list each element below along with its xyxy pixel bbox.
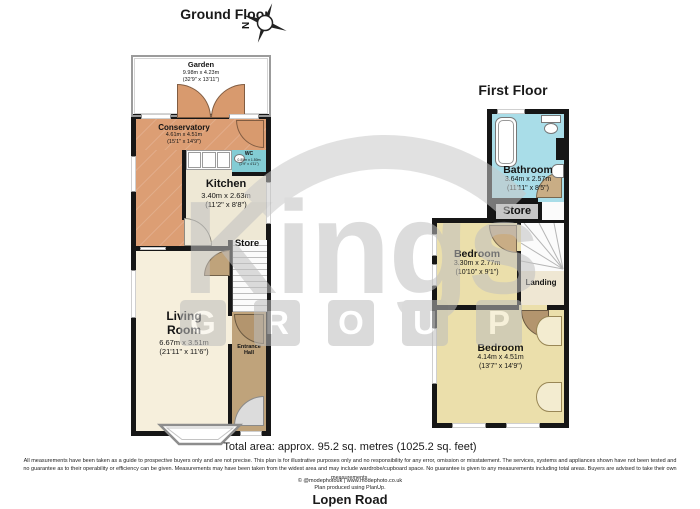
conservatory-window — [131, 156, 136, 192]
kitchen-window — [266, 182, 271, 224]
counter-unit — [217, 152, 230, 168]
bedroom-front-label: Bedroom 3.30m x 2.77m (10'10" x 9'1") — [437, 248, 517, 278]
toilet-cistern-icon — [541, 115, 561, 123]
first-floor-store-label: Store — [496, 204, 538, 219]
first-floor-title: First Floor — [445, 82, 581, 98]
first-floor-stairs — [521, 223, 564, 271]
bedroom-back-window-2 — [506, 423, 540, 428]
landing-label: Landing — [515, 278, 567, 287]
credit-line-1: © @modephotouk | www.modephoto.co.uk — [0, 478, 700, 484]
conservatory-top-window-left — [141, 114, 171, 119]
garden-label: Garden 9.98m x 4.23m (32'9" x 13'11") — [133, 61, 269, 83]
bathtub-icon — [495, 117, 517, 167]
hob-unit — [202, 152, 215, 168]
bathroom-wall-stub — [556, 138, 569, 160]
bathroom-window — [497, 109, 525, 114]
bedroom-front-door-gap — [517, 225, 521, 251]
bedroom-back-window-1 — [452, 423, 486, 428]
conservatory-side-area — [136, 150, 186, 246]
living-room-label: Living Room 6.67m x 3.51m (21'11" x 11'6… — [140, 310, 228, 356]
wc-wall — [232, 172, 266, 176]
bedroom-back-label: Bedroom 4.14m x 4.51m (13'7" x 14'9") — [437, 342, 564, 372]
compass-icon: N — [241, 1, 289, 45]
living-room-window — [131, 270, 136, 318]
floorplan: Ground Floor N First Floor Garden 9.98m … — [0, 0, 700, 509]
compass-north-label: N — [241, 22, 252, 29]
living-conservatory-window — [140, 247, 166, 250]
bathroom-label: Bathroom 3.64m x 2.57m (11'11" x 8'5") — [492, 164, 564, 194]
kitchen-label: Kitchen 3.40m x 2.63m (11'2" x 8'8") — [186, 178, 266, 209]
living-hall-door-gap — [228, 316, 232, 344]
first-floor-store: Store — [494, 202, 540, 221]
conservatory-top-window-right — [229, 114, 259, 119]
ground-floor-stairs — [232, 240, 267, 312]
stairs-top-area — [542, 202, 564, 220]
conservatory-label: Conservatory 4.61m x 4.51m (15'1" x 14'9… — [138, 123, 230, 146]
kitchen-counter — [186, 150, 232, 170]
sink-unit — [188, 152, 201, 168]
wardrobe-door-lower — [536, 382, 562, 412]
wc-label: WC 0.85m x 1.50m (2'9" x 4'11") — [234, 152, 264, 167]
toilet-icon — [544, 123, 558, 134]
entrance-hall-label: Entrance Hall — [232, 344, 266, 357]
watermark: Kings G R O U P — [0, 0, 700, 509]
total-area-text: Total area: approx. 95.2 sq. metres (102… — [0, 441, 700, 453]
bathtub-inner — [498, 120, 514, 164]
ground-floor-store-label: Store — [224, 238, 270, 249]
bedroom-back-door-gap — [519, 305, 547, 310]
watermark-letter: O — [328, 300, 374, 346]
address-text: Lopen Road — [0, 492, 700, 507]
credit-line-2: Plan produced using PlanUp. — [0, 485, 700, 491]
